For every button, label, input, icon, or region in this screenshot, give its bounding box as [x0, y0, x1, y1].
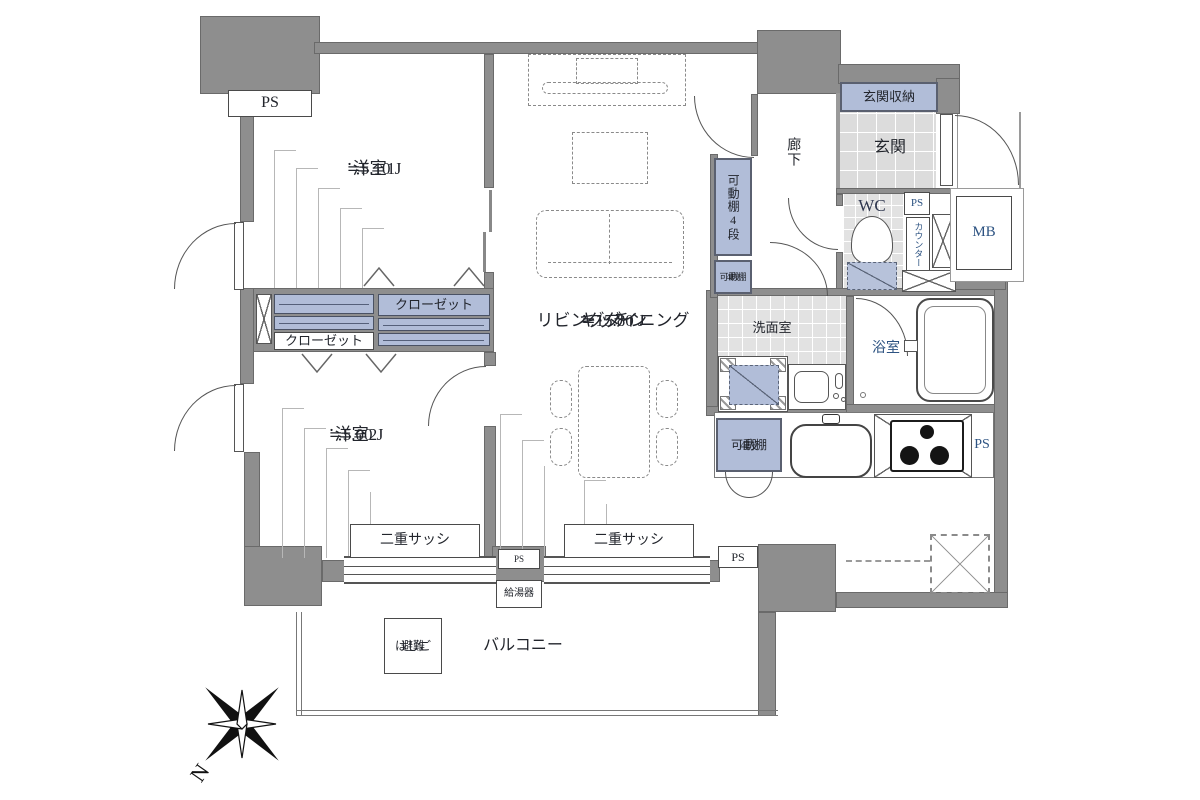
outline-east-genkan — [1019, 112, 1021, 190]
washroom-door-arc — [770, 242, 828, 296]
room-area: ≒5.10 J — [347, 159, 402, 179]
entrance-label: 玄関 — [858, 136, 922, 160]
floor-plan: クローゼット クローゼット 可動棚4段 可動棚 4段 PS カウンター MB — [0, 0, 1200, 800]
closet1-shelf — [378, 318, 490, 331]
toilet-tank — [847, 262, 897, 290]
fridge-dash-line — [846, 560, 930, 562]
dining-chair — [656, 428, 678, 466]
burner — [930, 446, 949, 465]
closet2-shelf — [274, 316, 374, 330]
hallway-label: 廊下 — [782, 128, 802, 176]
vanity-faucet — [835, 373, 843, 389]
closet2-shelf — [274, 294, 374, 314]
folding-door-icon — [300, 352, 334, 374]
closet2-label-box: クローゼット — [274, 332, 374, 350]
wall-windowA-stub — [322, 560, 346, 582]
dining-chair — [656, 380, 678, 418]
ps-label: PS — [911, 197, 923, 210]
wall-east — [994, 278, 1008, 608]
double-sash-label-1: 二重サッシ — [350, 524, 480, 558]
wall-bottom-right — [836, 592, 1008, 608]
ps-label: PS — [974, 437, 990, 454]
wall-balcony-right-bar — [758, 612, 776, 716]
dining-chair — [550, 428, 572, 466]
burner — [920, 425, 934, 439]
water-heater-label: 給湯器 — [504, 588, 534, 600]
room-name: 洗面室 — [752, 320, 791, 335]
ps-box-topleft: PS — [228, 90, 312, 117]
double-sash-window-2 — [544, 556, 710, 584]
balcony-bottom-rail — [296, 710, 778, 716]
room-name: 玄関収納 — [863, 89, 915, 104]
bed1-window-arc — [174, 223, 236, 289]
ps-label: PS — [731, 550, 744, 564]
wall-bed2-east — [484, 426, 496, 562]
room-name: 浴室 — [872, 341, 900, 358]
room-area: ≒15.80 J — [581, 311, 644, 331]
ldk-door-arc — [694, 96, 754, 158]
entrance-storage-box: 玄関収納 — [840, 82, 938, 112]
counter-label: カウンター — [913, 222, 924, 267]
closet1-label-slab: クローゼット — [378, 294, 490, 316]
folding-door-icon — [452, 266, 486, 288]
ps-label: PS — [514, 554, 524, 565]
burner — [900, 446, 919, 465]
shaft-x-wide — [902, 270, 956, 292]
kitchen-faucet — [822, 414, 840, 424]
escape-ladder-box: 避難 はしご — [384, 618, 442, 674]
sofa — [536, 210, 684, 278]
wall-top — [314, 42, 758, 54]
entrance-door-leaf — [940, 114, 953, 186]
wall-bed1-ldk-upper — [484, 54, 494, 188]
room-area: ≒5.00 J — [329, 425, 384, 445]
room-name: 廊下 — [784, 137, 801, 167]
wall-bed2-east-stub — [484, 352, 496, 366]
ps-box-balcony: PS — [718, 546, 758, 568]
water-heater-box: 給湯器 — [496, 580, 542, 608]
stove-unit — [890, 420, 964, 472]
ps-box-pier: PS — [498, 549, 540, 569]
sofa-divider — [609, 214, 610, 264]
wall-topleft-block — [200, 16, 320, 94]
double-sash-label-2: 二重サッシ — [564, 524, 694, 558]
bathtub — [916, 298, 994, 402]
closet1-label: クローゼット — [395, 297, 473, 312]
double-sash-window-1 — [344, 556, 496, 584]
wall-right-of-storage — [936, 78, 960, 114]
shelf-line2: 4段 — [726, 272, 740, 283]
washing-machine-pan — [718, 356, 788, 412]
mb-box: MB — [956, 196, 1012, 270]
bath-drain — [860, 392, 866, 398]
wall-sw-corner-block — [244, 546, 322, 606]
sofa-seat-line — [548, 262, 672, 263]
escape-ladder-line2: はしご — [395, 639, 431, 653]
balcony-label: バルコニー — [448, 634, 598, 658]
double-sash-label: 二重サッシ — [594, 533, 664, 550]
room-name: 玄関 — [874, 139, 906, 158]
double-sash-label: 二重サッシ — [380, 533, 450, 550]
movable-shelf-small: 可動棚 4段 — [714, 260, 752, 294]
mb-label: MB — [972, 224, 995, 242]
shelf-line2: 4段 — [740, 438, 758, 452]
wall-topright-block — [757, 30, 841, 94]
shelf-door-arc — [725, 472, 749, 498]
room-name: バルコニー — [483, 637, 563, 656]
toilet-bowl — [851, 216, 893, 264]
ps-label: PS — [261, 94, 279, 113]
wc-door-arc — [788, 198, 838, 250]
dining-table — [578, 366, 650, 478]
bedroom2-label: 洋室2 ≒5.00 J — [300, 412, 412, 458]
movable-shelf-tall: 可動棚4段 — [714, 158, 752, 256]
ps-label-kitchen: PS — [970, 434, 994, 456]
closet-shaft — [256, 294, 272, 344]
compass-north-label: N — [185, 759, 215, 786]
bed2-window-arc — [174, 385, 236, 451]
wall-west-lower — [244, 452, 260, 548]
movable-shelf-kitchen: 可動棚 4段 — [716, 418, 782, 472]
movable-shelf-label: 可動棚4段 — [726, 174, 740, 241]
wall-bath-west — [846, 296, 854, 408]
bathroom-label: 浴室 — [858, 338, 914, 360]
tv-inner — [576, 58, 638, 84]
coffee-table — [572, 132, 648, 184]
washing-machine — [729, 365, 779, 405]
toilet-label: WC — [843, 195, 901, 217]
compass-rose: N — [176, 658, 312, 798]
fridge-space — [930, 534, 990, 594]
bed1-sliding-door — [483, 188, 495, 272]
counter-box: カウンター — [906, 217, 930, 271]
ldk-label: リビングダイニング キッチン ≒15.80 J — [518, 284, 708, 358]
closet1-shelf — [378, 333, 490, 346]
room-name: WC — [858, 196, 885, 216]
dining-chair — [550, 380, 572, 418]
vanity — [788, 364, 846, 410]
wall-west-mid — [240, 288, 254, 384]
shelf-door-arc — [749, 472, 773, 498]
bedroom1-label: 洋室1 ≒5.10 J — [318, 146, 430, 192]
ps-box-wc: PS — [904, 192, 930, 215]
folding-door-icon — [362, 266, 396, 288]
wall-balcony-ne-block — [758, 544, 836, 612]
kitchen-sink — [790, 424, 872, 478]
washroom-label: 洗面室 — [736, 318, 808, 338]
vanity-bowl — [794, 371, 829, 403]
entrance-door-arc — [955, 115, 1019, 185]
closet2-label: クローゼット — [285, 333, 363, 348]
folding-door-icon — [364, 352, 398, 374]
bed2-door-arc — [428, 366, 486, 426]
